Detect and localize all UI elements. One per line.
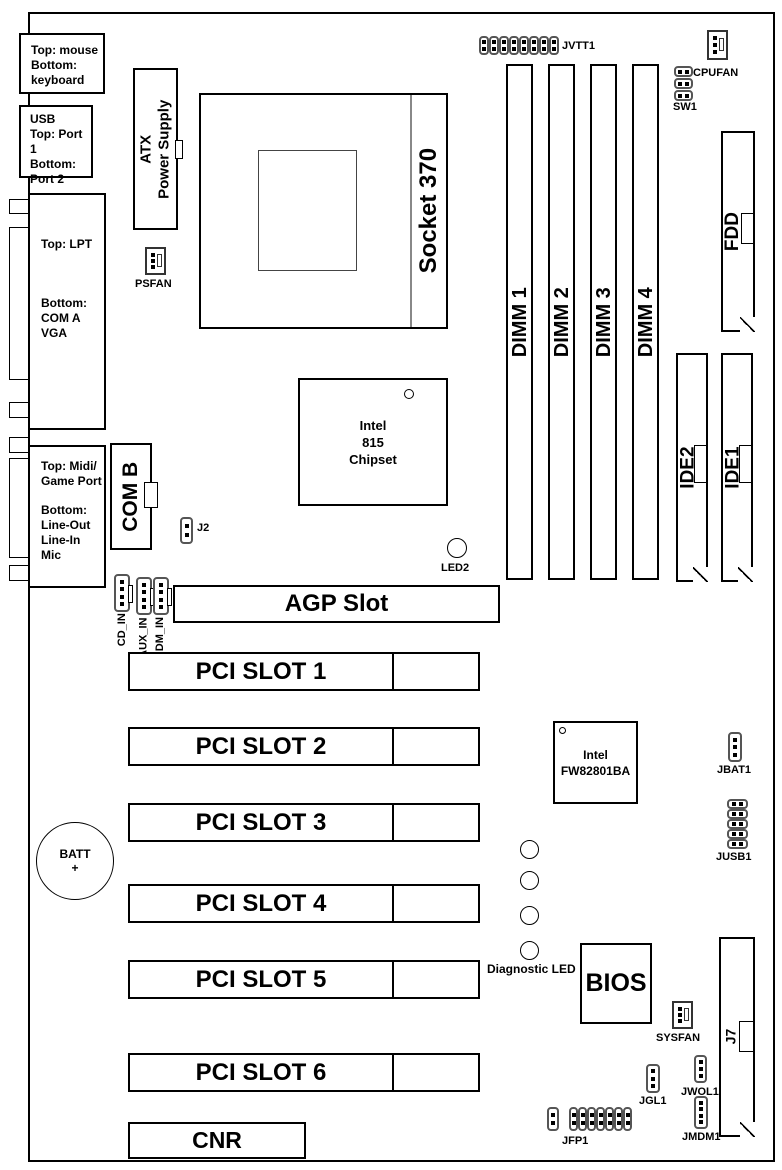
- pci-label: PCI SLOT 6: [196, 1059, 327, 1087]
- rear-stub: [9, 227, 29, 380]
- diagnostic-led-icon: [520, 840, 539, 859]
- fan-tab-icon: [719, 38, 724, 52]
- dimm2-label: DIMM 2: [548, 64, 575, 580]
- bios-label: BIOS: [585, 969, 646, 998]
- led2-icon: [447, 538, 467, 558]
- pci-label: PCI SLOT 2: [196, 733, 327, 761]
- pci-label: PCI SLOT 1: [196, 658, 327, 686]
- pci-label: PCI SLOT 5: [196, 966, 327, 994]
- port-label-line: Line-Out: [41, 518, 104, 533]
- chipset-815: Intel 815 Chipset: [298, 378, 448, 506]
- jusb1-header: [727, 799, 748, 849]
- port-label-line: Line-In: [41, 533, 104, 548]
- rear-stub: [9, 565, 29, 581]
- jgl1-jumper: [646, 1064, 660, 1093]
- diagnostic-led-icon: [520, 941, 539, 960]
- diagnostic-led-icon: [520, 871, 539, 890]
- j7-label: J7: [717, 937, 745, 1137]
- port-label-line: Top: Port 1: [30, 127, 91, 157]
- rear-stub: [9, 402, 29, 418]
- rear-stub: [9, 437, 29, 453]
- cpufan-label: CPUFAN: [693, 67, 738, 79]
- pci-label: PCI SLOT 3: [196, 809, 327, 837]
- ich-chip: Intel FW82801BA: [553, 721, 638, 804]
- pci-divider: [392, 729, 394, 764]
- port-midi-audio: Top: Midi/ Game Port Bottom: Line-Out Li…: [28, 445, 106, 588]
- port-label-line: COM A: [41, 311, 104, 326]
- chipset-line: Chipset: [349, 451, 397, 468]
- pci-divider: [392, 962, 394, 997]
- port-label-line: Bottom:: [41, 296, 104, 311]
- pci-slot-4: PCI SLOT 4: [128, 884, 480, 923]
- chipset-line: 815: [349, 434, 397, 451]
- jbat1-jumper: [728, 732, 742, 762]
- jfp1-pin-block: [547, 1107, 559, 1131]
- jbat1-label: JBAT1: [717, 764, 751, 776]
- port-mouse-keyboard: Top: mouse Bottom: keyboard: [19, 33, 105, 94]
- bios-chip: BIOS: [580, 943, 652, 1024]
- port-label-line: Bottom:: [41, 503, 104, 518]
- mdm-in-connector: [153, 577, 169, 615]
- ide1-label: IDE1: [719, 353, 747, 582]
- pci-slot-2: PCI SLOT 2: [128, 727, 480, 766]
- battery: BATT +: [36, 822, 114, 900]
- sw1-label: SW1: [673, 101, 697, 113]
- pci-divider: [392, 654, 394, 689]
- cpu-socket-inner: [258, 150, 357, 271]
- jmdm1-label: JMDM1: [682, 1131, 721, 1143]
- pci-slot-6: PCI SLOT 6: [128, 1053, 480, 1092]
- sysfan-connector: [672, 1001, 693, 1029]
- mdm-in-tab: [167, 588, 172, 606]
- dimm1-label: DIMM 1: [506, 64, 533, 580]
- diagnostic-led-icon: [520, 906, 539, 925]
- port-label-line: USB: [30, 112, 91, 127]
- port-label-line: Game Port: [41, 474, 104, 489]
- pci-divider: [392, 1055, 394, 1090]
- aux-in-connector: [136, 577, 152, 615]
- sw1-switch: [674, 66, 693, 101]
- port-label-line: Top: Midi/: [41, 459, 104, 474]
- port-lpt-com-vga: Top: LPT Bottom: COM A VGA: [28, 193, 106, 430]
- battery-plus: +: [71, 861, 78, 875]
- jfp1-label: JFP1: [562, 1135, 588, 1147]
- rear-stub: [9, 199, 29, 214]
- cnr-slot: CNR: [128, 1122, 306, 1159]
- port-label-line: Top: mouse: [31, 43, 103, 58]
- cd-in-connector: [114, 574, 130, 612]
- j2-jumper: [180, 517, 193, 544]
- pci-slot-3: PCI SLOT 3: [128, 803, 480, 842]
- pci-divider: [392, 886, 394, 921]
- port-label-line: Mic: [41, 548, 104, 563]
- fan-tab-icon: [157, 254, 162, 266]
- fdd-label: FDD: [719, 131, 747, 332]
- cd-in-tab: [128, 585, 133, 603]
- jvtt1-header: [479, 36, 559, 55]
- ich-line: Intel: [561, 747, 630, 763]
- battery-label: BATT: [59, 847, 90, 861]
- fan-tab-icon: [684, 1008, 689, 1020]
- rear-stub: [9, 458, 29, 558]
- led2-label: LED2: [441, 562, 469, 574]
- com-b-label: COM B: [110, 443, 152, 550]
- port-label-line: Port 2: [30, 172, 91, 187]
- psfan-label: PSFAN: [135, 278, 172, 290]
- dimm4-label: DIMM 4: [632, 64, 659, 580]
- psfan-connector: [145, 247, 166, 275]
- port-label-line: VGA: [41, 326, 104, 341]
- port-label-line: keyboard: [31, 73, 103, 88]
- jfp1-header: [569, 1107, 632, 1131]
- j2-label: J2: [197, 522, 209, 534]
- chip-pin1-dot: [404, 389, 414, 399]
- ich-line: FW82801BA: [561, 763, 630, 779]
- pci-slot-1: PCI SLOT 1: [128, 652, 480, 691]
- pci-divider: [392, 805, 394, 840]
- atx-line: Power Supply: [156, 99, 174, 198]
- cpu-socket-label: Socket 370: [409, 93, 448, 329]
- atx-power-label: ATX Power Supply: [133, 68, 178, 230]
- motherboard-layout-diagram: Top: mouse Bottom: keyboard USB Top: Por…: [0, 0, 782, 1170]
- jgl1-label: JGL1: [639, 1095, 667, 1107]
- jusb1-label: JUSB1: [716, 851, 751, 863]
- fan-pins-icon: [151, 253, 155, 269]
- pci-slot-5: PCI SLOT 5: [128, 960, 480, 999]
- chip-pin1-dot: [559, 727, 566, 734]
- fan-pins-icon: [713, 36, 717, 54]
- port-label-line: Top: LPT: [41, 237, 104, 252]
- chipset-line: Intel: [349, 417, 397, 434]
- ide2-label: IDE2: [674, 353, 702, 582]
- port-label-line: Bottom:: [30, 157, 91, 172]
- diagnostic-led-label: Diagnostic LED: [487, 962, 576, 976]
- jmdm1-connector: [694, 1096, 708, 1129]
- jwol1-jumper: [694, 1055, 707, 1083]
- pci-label: PCI SLOT 4: [196, 890, 327, 918]
- jvtt1-label: JVTT1: [562, 40, 595, 52]
- agp-label: AGP Slot: [285, 590, 389, 618]
- cd-in-label: CD_IN: [114, 608, 130, 652]
- dimm3-label: DIMM 3: [590, 64, 617, 580]
- fan-pins-icon: [678, 1007, 682, 1023]
- atx-line: ATX: [137, 99, 155, 198]
- cpufan-connector: [707, 30, 728, 60]
- cnr-label: CNR: [192, 1127, 242, 1154]
- agp-slot: AGP Slot: [173, 585, 500, 623]
- port-label-line: Bottom:: [31, 58, 103, 73]
- port-usb: USB Top: Port 1 Bottom: Port 2: [19, 105, 93, 178]
- sysfan-label: SYSFAN: [656, 1032, 700, 1044]
